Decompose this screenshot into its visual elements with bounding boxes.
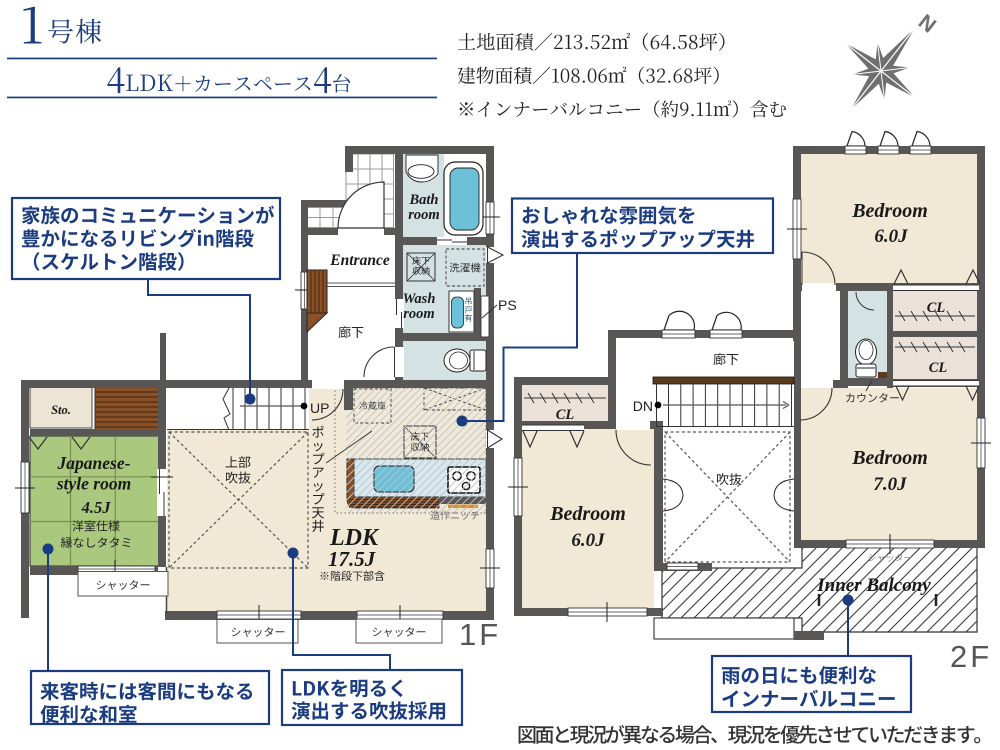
svg-text:PS: PS [498, 297, 517, 313]
svg-text:1F: 1F [459, 617, 501, 652]
svg-text:style room: style room [56, 474, 131, 494]
svg-text:6.0J: 6.0J [874, 226, 908, 247]
svg-text:2F: 2F [950, 639, 992, 674]
svg-text:CL: CL [929, 360, 948, 376]
svg-text:CL: CL [927, 300, 946, 316]
svg-text:4.5J: 4.5J [81, 498, 112, 517]
svg-text:Sto.: Sto. [51, 403, 71, 417]
svg-text:room: room [408, 207, 439, 223]
svg-text:Entrance: Entrance [329, 252, 390, 269]
svg-text:Bath: Bath [408, 192, 438, 208]
svg-text:Japanese-: Japanese- [57, 453, 131, 473]
svg-text:DN: DN [633, 398, 653, 414]
svg-text:UP: UP [310, 400, 329, 416]
svg-text:6.0J: 6.0J [571, 530, 605, 551]
svg-text:Bedroom: Bedroom [851, 447, 928, 469]
svg-text:17.5J: 17.5J [328, 547, 377, 571]
svg-text:7.0J: 7.0J [873, 474, 907, 495]
svg-text:Wash: Wash [403, 291, 436, 307]
svg-text:Inner Balcony: Inner Balcony [816, 575, 931, 596]
svg-text:room: room [403, 306, 434, 322]
svg-text:CL: CL [556, 407, 575, 423]
svg-text:Bedroom: Bedroom [851, 200, 928, 222]
svg-text:Bedroom: Bedroom [549, 503, 626, 525]
